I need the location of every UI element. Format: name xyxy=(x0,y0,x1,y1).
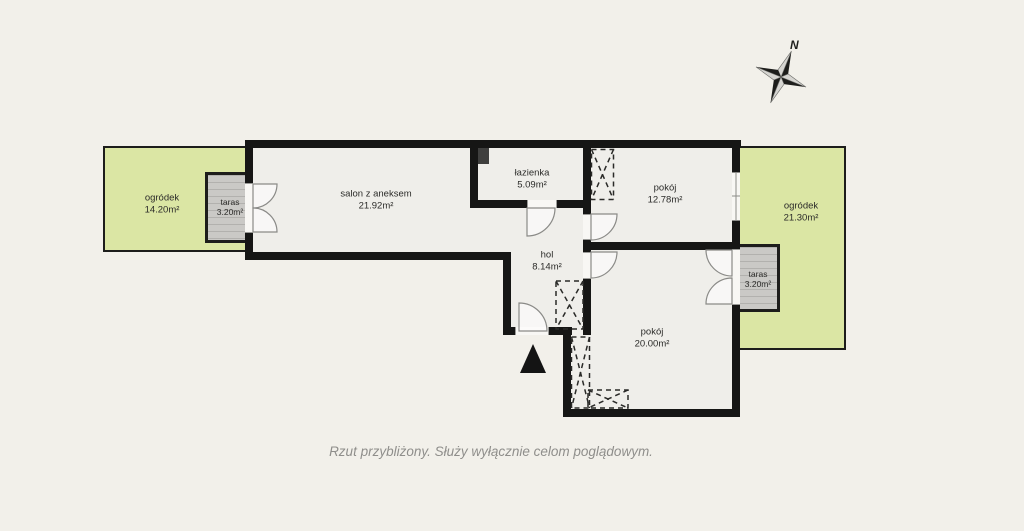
entrance-arrow-icon xyxy=(520,344,546,373)
wardrobe-room1 xyxy=(592,150,614,200)
door-swing-salon-bottom xyxy=(253,208,277,232)
room-area: 8.14m² xyxy=(532,261,562,273)
room-area: 21.92m² xyxy=(340,200,411,212)
wardrobe-room2 xyxy=(572,337,629,408)
door-swing-room2 xyxy=(591,252,617,278)
label-terrace-left: taras 3.20m² xyxy=(217,197,243,217)
compass-icon xyxy=(745,41,816,113)
label-bathroom: łazienka 5.09m² xyxy=(515,168,550,191)
label-garden-left: ogródek 14.20m² xyxy=(145,193,180,216)
label-hall: hol 8.14m² xyxy=(532,250,562,273)
label-room1: pokój 12.78m² xyxy=(648,183,683,206)
door-swing-room1 xyxy=(591,214,617,240)
room-name: ogródek xyxy=(145,193,180,205)
label-terrace-right: taras 3.20m² xyxy=(745,269,771,289)
wardrobe-hall xyxy=(556,281,583,329)
room-area: 3.20m² xyxy=(745,279,771,289)
north-label: N xyxy=(790,38,799,52)
label-salon: salon z aneksem 21.92m² xyxy=(340,189,411,212)
room-area: 21.30m² xyxy=(784,212,819,224)
room-name: taras xyxy=(745,269,771,279)
disclaimer-caption: Rzut przybliżony. Służy wyłącznie celom … xyxy=(291,444,691,459)
room-name: hol xyxy=(532,250,562,262)
door-swing-entrance xyxy=(519,303,547,331)
door-swing-terrace-top xyxy=(706,250,732,276)
room-name: pokój xyxy=(635,327,670,339)
room-name: pokój xyxy=(648,183,683,195)
room-area: 14.20m² xyxy=(145,204,180,216)
room-area: 12.78m² xyxy=(648,194,683,206)
label-garden-right: ogródek 21.30m² xyxy=(784,201,819,224)
door-swing-terrace-bottom xyxy=(706,278,732,304)
window-room1 xyxy=(732,172,740,221)
door-swing-salon-top xyxy=(253,184,277,208)
room-name: taras xyxy=(217,197,243,207)
room-name: ogródek xyxy=(784,201,819,213)
label-room2: pokój 20.00m² xyxy=(635,327,670,350)
floorplan-canvas: N ogródek 14.20m² taras 3.20m² salon z a… xyxy=(0,0,1024,531)
door-swing-bathroom xyxy=(527,208,555,236)
room-area: 5.09m² xyxy=(515,179,550,191)
room-area: 20.00m² xyxy=(635,338,670,350)
room-name: salon z aneksem xyxy=(340,189,411,201)
room-name: łazienka xyxy=(515,168,550,180)
room-area: 3.20m² xyxy=(217,207,243,217)
